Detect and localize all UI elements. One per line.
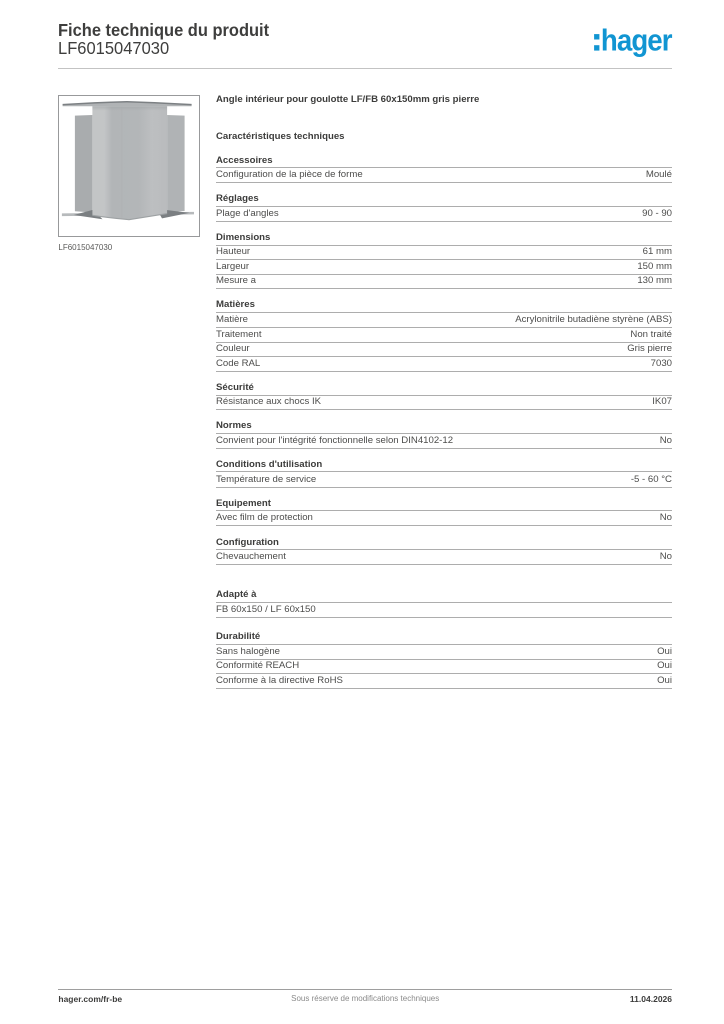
svg-text:hager: hager [601, 24, 672, 58]
